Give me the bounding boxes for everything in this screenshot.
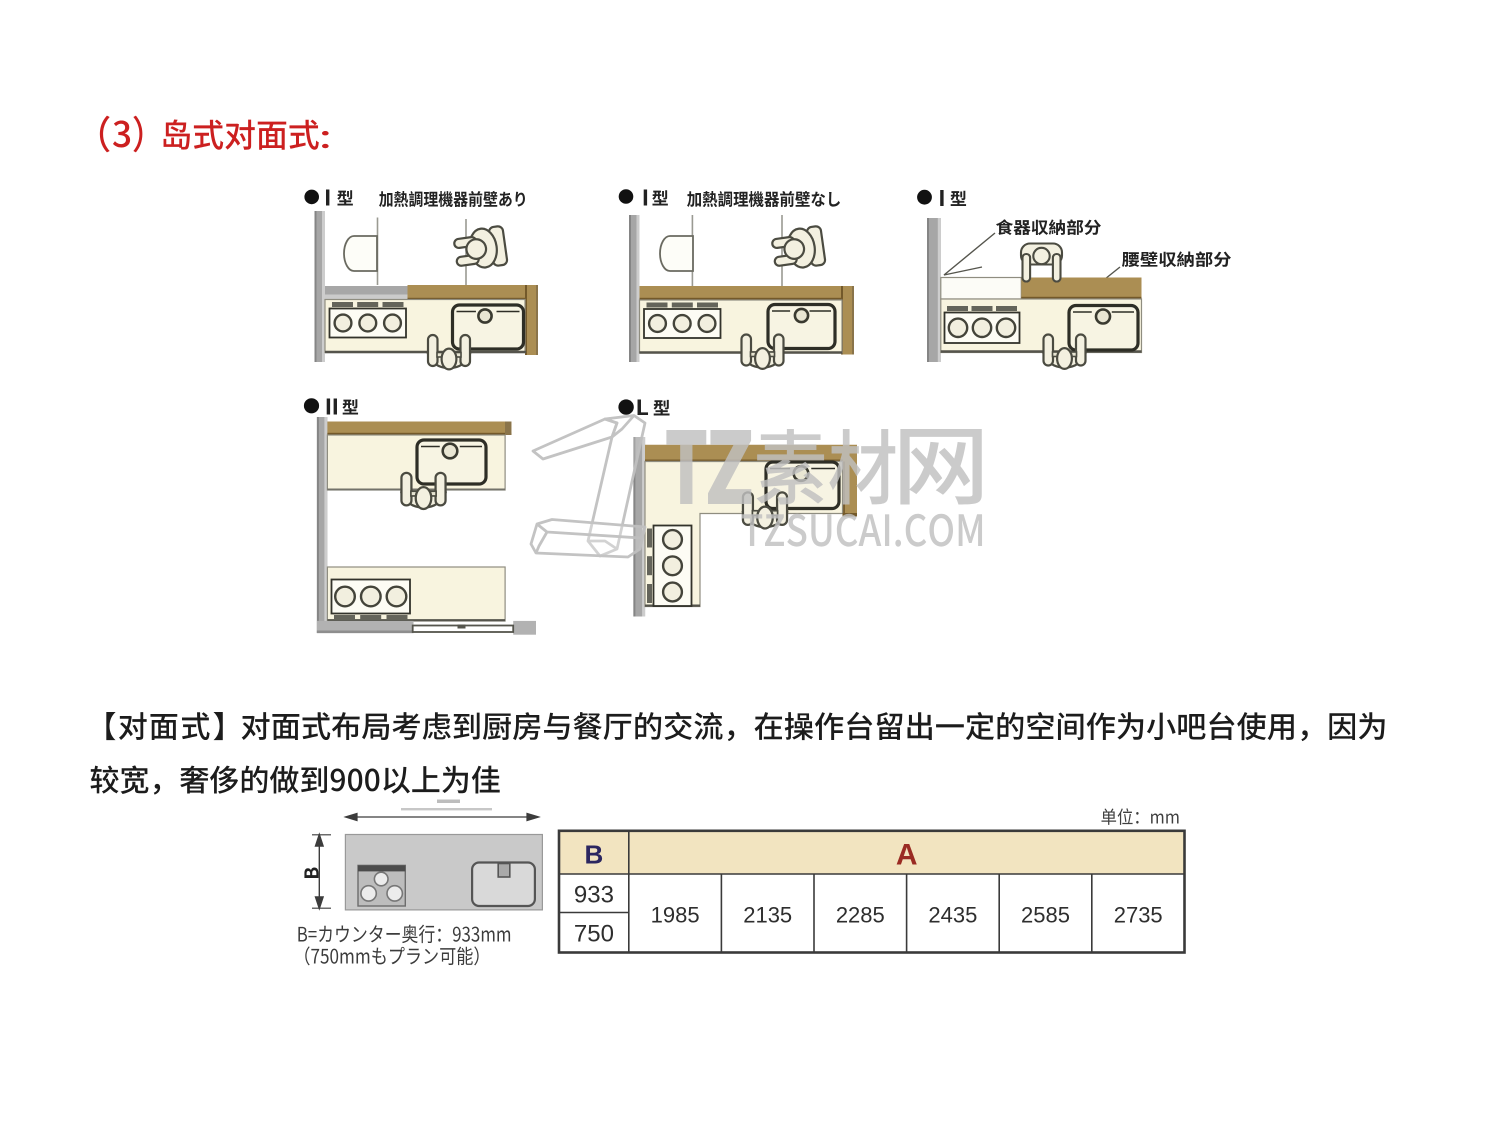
svg-text:2585: 2585 [1021,903,1070,928]
svg-text:B: B [585,840,604,870]
svg-text:933: 933 [574,882,614,909]
svg-text:A: A [896,839,918,872]
svg-text:2735: 2735 [1114,903,1163,928]
svg-text:1985: 1985 [651,903,700,928]
svg-text:2285: 2285 [836,903,885,928]
svg-text:2135: 2135 [743,903,792,928]
svg-text:750: 750 [574,921,614,948]
svg-text:2435: 2435 [928,903,977,928]
